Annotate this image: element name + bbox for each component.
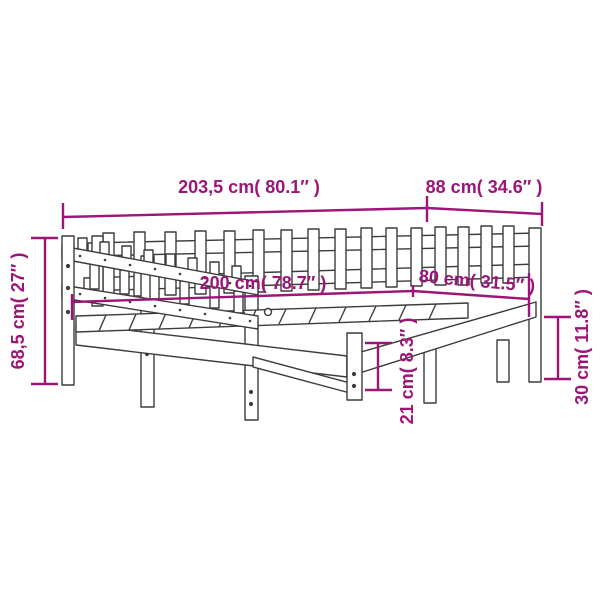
total-height-label: 68,5 cm( 27″ ) xyxy=(9,253,27,370)
inner-length-label: 200 cm( 78.7″ ) xyxy=(200,274,327,292)
base-height-label: 30 cm( 11.8″ ) xyxy=(573,289,591,405)
daybed-line-drawing xyxy=(0,0,600,600)
bed-artwork xyxy=(62,226,541,420)
total-length-label: 203,5 cm( 80.1″ ) xyxy=(178,178,320,196)
dimension-diagram: 203,5 cm( 80.1″ ) 88 cm( 34.6″ ) 68,5 cm… xyxy=(0,0,600,600)
under-bed-clearance-label: 21 cm( 8.3″ ) xyxy=(398,318,416,425)
total-width-label: 88 cm( 34.6″ ) xyxy=(426,178,543,196)
